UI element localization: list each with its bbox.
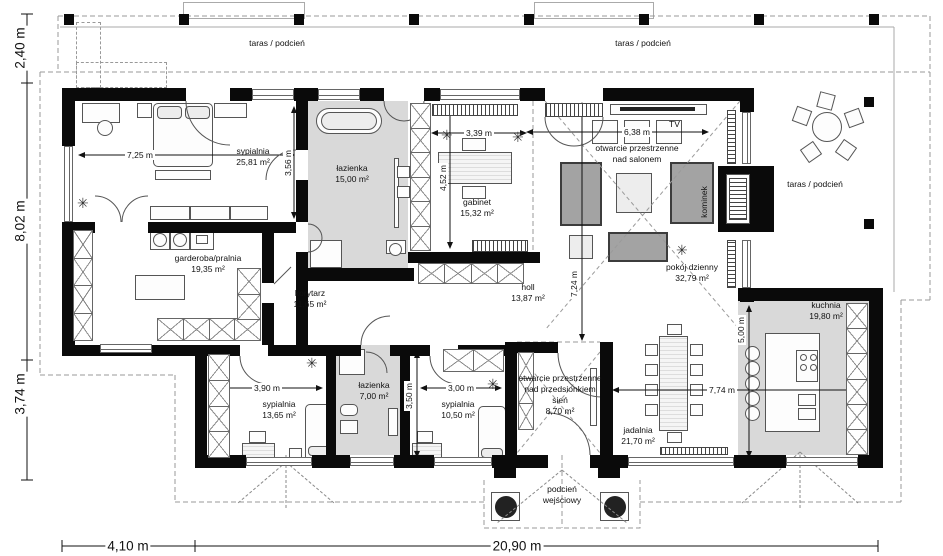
room-label-jadalnia: jadalnia21,70 m² (621, 425, 655, 447)
window (350, 457, 394, 466)
plant-icon: ✳ (487, 377, 501, 391)
dim-bottom-4-10: 4,10 m (105, 539, 150, 554)
wardrobe (846, 303, 868, 455)
window (252, 89, 294, 100)
wall (312, 455, 350, 468)
wardrobe (410, 103, 431, 251)
room-label-korytarz: korytarz11,65 m² (294, 288, 327, 310)
plant-icon: ✳ (441, 128, 455, 142)
room-label-gabinet: gabinet15,32 m² (460, 197, 494, 219)
column (754, 14, 764, 25)
room-label-holl: holl13,87 m² (511, 282, 545, 304)
window (628, 457, 734, 466)
room-label-kuchnia: kuchnia19,80 m² (809, 300, 843, 322)
label-taras-right: taras / podcień (787, 179, 843, 190)
wall (494, 468, 516, 478)
dim-3-56: 3,56 m (283, 148, 293, 178)
wall (390, 345, 410, 356)
column (639, 14, 649, 25)
wall (600, 342, 613, 468)
room-label-lazienka-1: łazienka15,00 m² (335, 163, 369, 185)
column (869, 14, 879, 25)
wall (296, 268, 414, 281)
wall (590, 455, 628, 468)
wardrobe (418, 263, 524, 284)
plant-icon: ✳ (306, 356, 320, 370)
wardrobe (443, 349, 504, 372)
wardrobe (73, 230, 93, 341)
wall (424, 88, 440, 101)
wardrobe (157, 318, 261, 341)
column (864, 97, 874, 107)
wall (492, 455, 548, 468)
dim-7-74: 7,74 m (707, 385, 737, 395)
wall (602, 342, 613, 353)
wall (598, 468, 620, 478)
dim-4-52: 4,52 m (438, 163, 448, 193)
wall (262, 233, 274, 283)
window (318, 89, 360, 100)
dim-3-90: 3,90 m (252, 383, 282, 393)
label-tv: TV (669, 119, 680, 130)
radiator-icon (660, 447, 728, 455)
window (434, 457, 492, 466)
window (440, 89, 520, 100)
column (294, 14, 304, 25)
window (64, 146, 73, 222)
dim-3-39: 3,39 m (464, 128, 494, 138)
radiator-icon (432, 104, 518, 116)
room-label-sypialnia-3: sypialnia10,50 m² (441, 399, 475, 421)
dim-5-00: 5,00 m (736, 315, 746, 345)
wall (296, 101, 308, 150)
column (524, 14, 534, 25)
column (409, 14, 419, 25)
room-label-sypialnia-2: sypialnia13,65 m² (262, 399, 296, 421)
wall (148, 222, 296, 233)
dim-3-50: 3,50 m (404, 381, 414, 411)
dim-3-00: 3,00 m (446, 383, 476, 393)
wall (296, 180, 308, 222)
wall (734, 455, 786, 468)
wall (195, 345, 207, 468)
plant-icon: ✳ (512, 130, 526, 144)
wall (410, 345, 430, 356)
plant-icon: ✳ (77, 196, 91, 210)
wall (326, 345, 336, 468)
window (246, 457, 312, 466)
wardrobe (237, 268, 261, 320)
window (742, 112, 751, 164)
label-taras-top-1: taras / podcień (249, 38, 305, 49)
dim-left-8-02: 8,02 m (13, 198, 28, 243)
wall (869, 288, 883, 468)
dim-6-38: 6,38 m (622, 127, 652, 137)
label-taras-top-2: taras / podcień (615, 38, 671, 49)
dim-bottom-20-90: 20,90 m (491, 539, 544, 554)
dim-left-2-40: 2,40 m (13, 25, 28, 70)
floor-plan: taras / podcień taras / podcień taras / … (0, 0, 943, 556)
window (100, 344, 152, 353)
column (64, 14, 74, 25)
wall (394, 455, 434, 468)
wall (294, 88, 318, 101)
wall (505, 342, 517, 468)
label-kominek: kominek (699, 186, 709, 218)
wall (62, 88, 186, 101)
radiator-icon (727, 240, 736, 288)
label-open-above-salon: otwarcie przestrzennenad salonem (595, 143, 678, 165)
wardrobe (208, 354, 230, 458)
wall (336, 345, 361, 356)
label-podcien-wejsciowy: podcieńwejściowy (543, 484, 581, 506)
room-label-lazienka-2: łazienka7,00 m² (358, 380, 389, 402)
room-label-sien: otwarcie przestrzennenad przedsionkiemsi… (518, 373, 601, 417)
plant-icon: ✳ (676, 243, 690, 257)
room-label-pokoj-dzienny: pokój dzienny32,79 m² (666, 262, 718, 284)
fireplace-grate-icon (729, 178, 747, 220)
wall (520, 88, 545, 101)
wall (603, 88, 754, 101)
radiator-icon (545, 103, 603, 117)
room-label-sypialnia-1: sypialnia25,81 m² (236, 146, 270, 168)
window (742, 240, 751, 288)
radiator-icon (472, 240, 528, 252)
window (786, 457, 858, 466)
radiator-icon (727, 110, 736, 164)
column (864, 219, 874, 229)
wall (408, 252, 540, 263)
wall (230, 88, 252, 101)
column (179, 14, 189, 25)
dim-7-24: 7,24 m (569, 269, 579, 299)
wall (740, 88, 754, 112)
dim-7-25: 7,25 m (125, 150, 155, 160)
room-label-garderoba: garderoba/pralnia19,35 m² (175, 253, 242, 275)
wall (360, 88, 384, 101)
dim-left-3-74: 3,74 m (13, 371, 28, 416)
wall (262, 303, 274, 345)
wall (62, 88, 75, 146)
